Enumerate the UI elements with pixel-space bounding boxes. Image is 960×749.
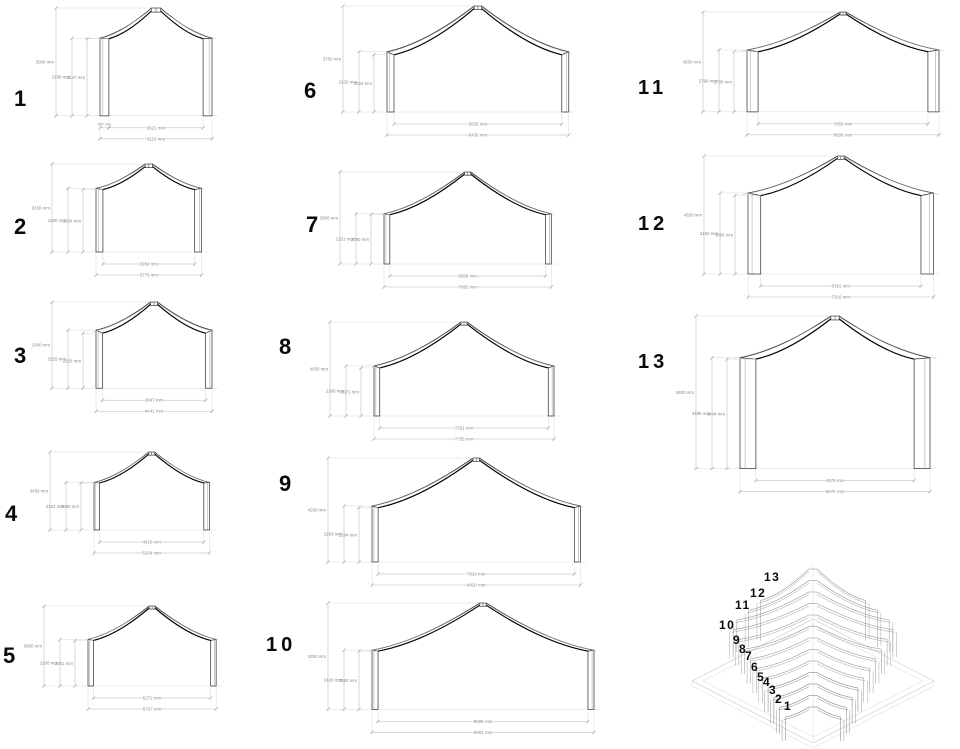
dim-total-height-5: 3600 mm [24,644,43,649]
dim-total-height-11: 4500 mm [683,60,702,65]
dim-inner-width-13: 4976 mm [826,478,845,483]
dim-total-height-1: 3000 mm [36,60,55,65]
dim-eave-inner-2: 2234 mm [63,218,82,223]
dim-column-width-1: 247 mm [98,122,112,126]
iso-frame-label-1: 1 [784,699,791,713]
frame-drawing-5: 3600 mm2100 mm2051 mm5272 mm5767 mm [36,600,226,722]
frame-elevation-10: 4350 mm2420 mm2382 mm8586 mm9081 mm [320,597,602,747]
frame-drawing-6: 3750 mm2132 mm2024 mm5935 mm6430 mm [335,0,600,148]
frame-number-13: 13 [638,352,668,372]
dim-inner-width-10: 8586 mm [474,719,493,724]
dim-eave-inner-1: 2147 mm [67,75,86,80]
frame-number-3: 3 [14,345,26,367]
dim-outer-width-4: 5104 mm [143,551,162,556]
frame-number-8: 8 [279,336,291,358]
frame-number-10: 10 [266,635,296,655]
dim-total-height-12: 4650 mm [684,213,703,218]
frame-drawing-10: 4350 mm2420 mm2382 mm8586 mm9081 mm [320,597,602,747]
frame-drawing-1: 3000 mm2158 mm2147 mm2621 mm3116 mm247 m… [48,2,220,154]
dim-eave-inner-8: 2071 mm [341,390,360,395]
dim-outer-width-3: 4441 mm [145,409,164,414]
dim-inner-width-6: 5935 mm [469,122,488,127]
dim-eave-inner-9: 2194 mm [339,532,358,537]
dim-outer-width-12: 7316 mm [832,295,851,300]
frame-elevation-1: 3000 mm2158 mm2147 mm2621 mm3116 mm247 m… [48,2,220,154]
frame-elevation-6: 3750 mm2132 mm2024 mm5935 mm6430 mm [335,0,600,148]
dim-outer-width-10: 9081 mm [474,730,493,735]
isometric-drawing: 13121110987654321 [676,545,960,747]
dim-outer-width-6: 6430 mm [469,133,488,138]
dim-inner-width-9: 7924 mm [467,572,486,577]
dim-eave-inner-12: 3090 mm [715,232,734,237]
frame-drawing-9: 4200 mm2263 mm2194 mm7924 mm8420 mm [320,452,600,598]
dim-total-height-4: 3450 mm [30,489,49,494]
frame-number-11: 11 [638,78,667,98]
frame-elevation-4: 3450 mm2104 mm2080 mm4610 mm5104 mm [42,446,222,566]
dim-inner-width-7: 6598 mm [458,274,477,279]
dim-total-height-7: 3900 mm [320,216,339,221]
dim-inner-width-3: 3947 mm [145,398,164,403]
dim-inner-width-8: 7261 mm [455,426,474,431]
dim-inner-width-4: 4610 mm [143,540,162,545]
frame-drawing-3: 3300 mm2225 mm2105 mm3947 mm4441 mm [44,296,220,426]
frame-drawing-4: 3450 mm2104 mm2080 mm4610 mm5104 mm [42,446,222,566]
dim-total-height-2: 3150 mm [32,206,51,211]
frame-elevation-8: 4050 mm2160 mm2071 mm7261 mm7755 mm [322,316,594,452]
dim-total-height-3: 3300 mm [32,343,51,348]
dim-total-height-10: 4350 mm [308,654,327,659]
dim-total-height-13: 4800 mm [676,390,695,395]
frame-drawing-2: 3150 mm2280 mm2234 mm3284 mm3779 mm [44,158,220,288]
frame-elevation-11: 4500 mm2790 mm2708 mm7656 mm8656 mm [695,6,947,150]
dim-outer-width-11: 8656 mm [834,132,853,137]
frame-elevation-13: 4800 mm3485 mm3444 mm4976 mm5976 mm [688,310,938,518]
dim-inner-width-11: 7656 mm [834,121,853,126]
dim-eave-inner-6: 2024 mm [354,81,373,86]
dim-eave-inner-10: 2382 mm [339,678,358,683]
dim-outer-width-8: 7755 mm [455,437,474,442]
dim-total-height-9: 4200 mm [308,508,327,513]
dim-inner-width-1: 2621 mm [147,125,166,130]
dim-eave-inner-11: 2708 mm [714,79,733,84]
frame-elevation-3: 3300 mm2225 mm2105 mm3947 mm4441 mm [44,296,220,426]
frame-number-5: 5 [3,645,15,667]
dim-outer-width-9: 8420 mm [467,583,486,588]
frame-number-6: 6 [304,80,316,102]
frame-elevation-7: 3900 mm2131 mm2090 mm6598 mm7092 mm [332,166,600,300]
frame-number-9: 9 [279,473,291,495]
dim-outer-width-5: 5767 mm [143,707,162,712]
isometric-assembly-view: 13121110987654321 [676,545,960,747]
frame-elevation-2: 3150 mm2280 mm2234 mm3284 mm3779 mm [44,158,220,288]
dim-inner-width-5: 5272 mm [143,696,162,701]
dim-inner-width-2: 3284 mm [140,262,159,267]
dim-total-height-6: 3750 mm [323,57,342,62]
frame-number-1: 1 [14,88,26,110]
dim-outer-width-13: 5976 mm [826,489,845,494]
frame-number-2: 2 [14,216,26,238]
frame-drawing-11: 4500 mm2790 mm2708 mm7656 mm8656 mm [695,6,947,150]
dim-outer-width-1: 3116 mm [147,136,165,141]
iso-frame-label-2: 2 [775,692,782,706]
dim-eave-inner-13: 3444 mm [707,411,726,416]
dim-total-height-8: 4050 mm [310,367,329,372]
dim-eave-inner-5: 2051 mm [55,661,74,666]
iso-frame-label-12: 12 [750,586,766,600]
frame-drawing-8: 4050 mm2160 mm2071 mm7261 mm7755 mm [322,316,594,452]
frame-drawing-12: 4650 mm3192 mm3090 mm6316 mm7316 mm [696,150,948,310]
dim-outer-width-2: 3779 mm [140,273,159,278]
frame-elevation-12: 4650 mm3192 mm3090 mm6316 mm7316 mm [696,150,948,310]
frame-elevation-5: 3600 mm2100 mm2051 mm5272 mm5767 mm [36,600,226,722]
frame-number-4: 4 [5,503,17,525]
iso-frame-label-10: 10 [719,618,735,632]
frame-drawing-13: 4800 mm3485 mm3444 mm4976 mm5976 mm [688,310,938,518]
dim-eave-inner-3: 2105 mm [63,358,82,363]
dim-inner-width-12: 6316 mm [832,284,851,289]
iso-frame-label-13: 13 [764,570,780,584]
iso-frame-label-11: 11 [735,598,751,612]
frame-drawing-7: 3900 mm2131 mm2090 mm6598 mm7092 mm [332,166,600,300]
frame-number-12: 12 [638,214,668,234]
frame-elevation-9: 4200 mm2263 mm2194 mm7924 mm8420 mm [320,452,600,598]
dim-outer-width-7: 7092 mm [458,285,477,290]
dim-eave-inner-7: 2090 mm [351,237,370,242]
dim-eave-inner-4: 2080 mm [61,504,80,509]
frame-number-7: 7 [306,214,318,236]
drawing-sheet: 3000 mm2158 mm2147 mm2621 mm3116 mm247 m… [0,0,960,749]
